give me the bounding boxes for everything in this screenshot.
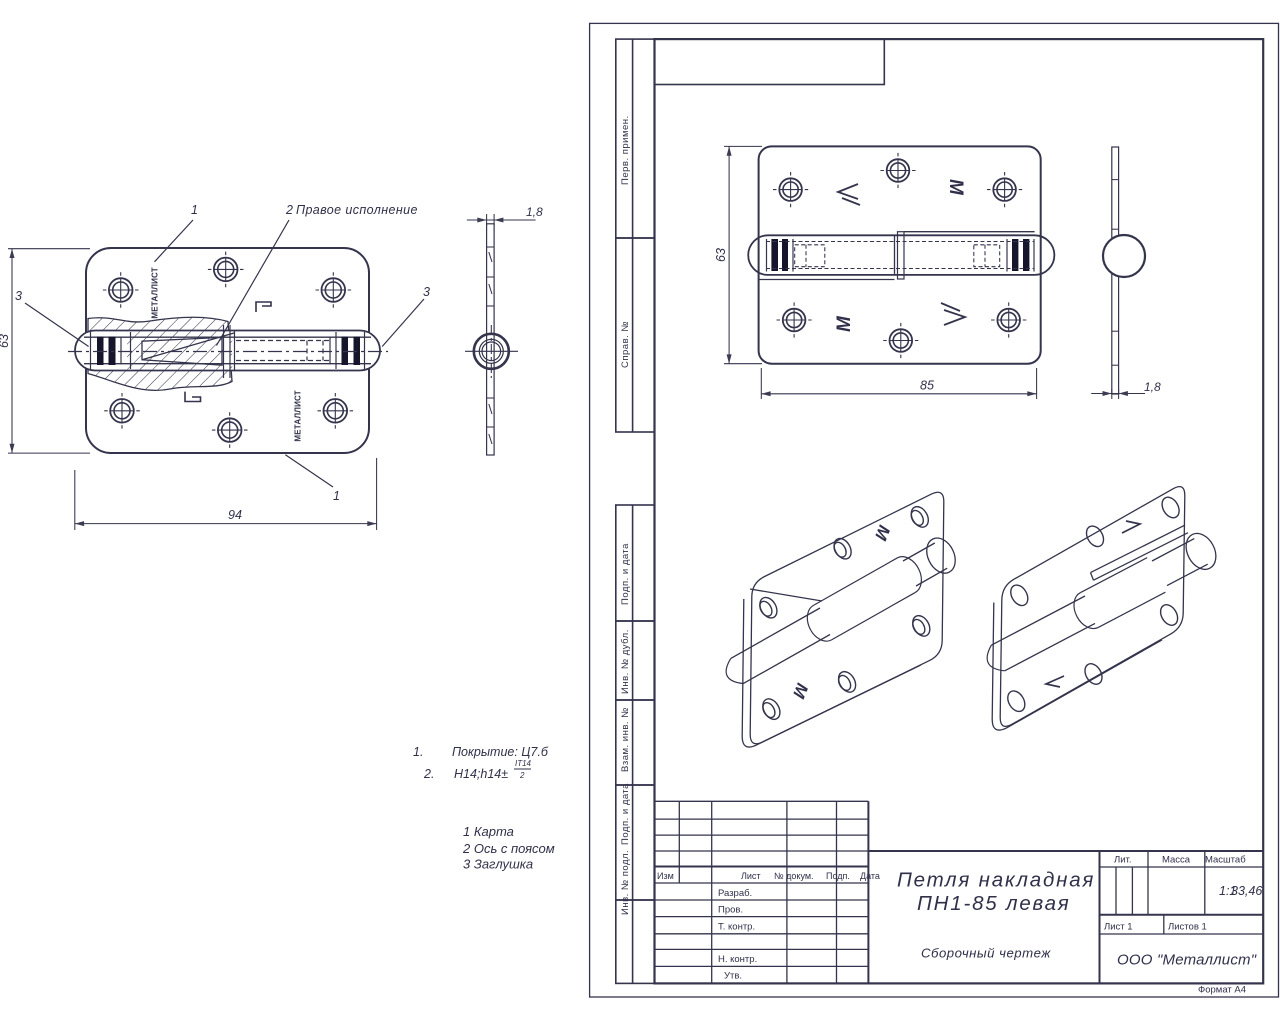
svg-text:Сборочный чертеж: Сборочный чертеж: [921, 946, 1051, 961]
svg-text:Подп. и дата: Подп. и дата: [620, 543, 631, 605]
svg-text:1,8: 1,8: [526, 205, 543, 219]
svg-text:Утв.: Утв.: [724, 971, 742, 982]
svg-text:Пров.: Пров.: [718, 905, 743, 916]
svg-text:МЕТАЛЛИСТ: МЕТАЛЛИСТ: [151, 267, 160, 319]
svg-text:94: 94: [228, 508, 242, 522]
svg-text:Лист 1: Лист 1: [1104, 922, 1133, 933]
svg-text:Масштаб: Масштаб: [1205, 855, 1246, 866]
svg-text:Петля накладная: Петля накладная: [897, 869, 1095, 892]
svg-text:63: 63: [0, 334, 11, 348]
svg-text:М: М: [871, 523, 894, 544]
svg-text:Листов 1: Листов 1: [1168, 922, 1207, 933]
svg-text:2: 2: [519, 771, 525, 780]
svg-text:Справ. №: Справ. №: [620, 321, 631, 368]
svg-text:Инв. № подл.: Инв. № подл.: [620, 850, 631, 915]
svg-text:Н. контр.: Н. контр.: [718, 954, 757, 965]
svg-text:Перв. примен.: Перв. примен.: [620, 115, 631, 185]
svg-text:МЕТАЛЛИСТ: МЕТАЛЛИСТ: [294, 390, 303, 442]
svg-text:1 Карта: 1 Карта: [463, 824, 514, 839]
svg-text:63: 63: [714, 248, 728, 262]
svg-text:2 Ось с поясом: 2 Ось с поясом: [462, 841, 555, 856]
svg-text:2.: 2.: [423, 767, 434, 781]
svg-text:М: М: [789, 681, 812, 702]
svg-text:Инв. № дубл.: Инв. № дубл.: [620, 629, 631, 694]
svg-text:Покрытие: Ц7.б: Покрытие: Ц7.б: [452, 745, 549, 759]
svg-text:1: 1: [191, 203, 198, 217]
svg-text:85: 85: [920, 379, 934, 393]
svg-text:Формат А4: Формат А4: [1198, 985, 1246, 996]
svg-text:Т. контр.: Т. контр.: [718, 922, 755, 933]
svg-text:№ докум.: № докум.: [774, 871, 814, 881]
svg-text:3: 3: [15, 289, 22, 303]
svg-text:Лист: Лист: [741, 871, 761, 881]
svg-text:3: 3: [423, 285, 430, 299]
svg-text:ООО "Металлист": ООО "Металлист": [1117, 952, 1257, 969]
svg-text:Масса: Масса: [1162, 855, 1191, 866]
svg-text:М: М: [834, 315, 855, 332]
svg-text:ПН1-85 левая: ПН1-85 левая: [917, 892, 1071, 915]
svg-text:Лит.: Лит.: [1114, 855, 1131, 866]
svg-text:1,8: 1,8: [1144, 380, 1161, 394]
svg-text:3 Заглушка: 3 Заглушка: [463, 857, 533, 872]
svg-text:Взам. инв. №: Взам. инв. №: [620, 707, 631, 772]
svg-text:Разраб.: Разраб.: [718, 888, 752, 899]
svg-text:1: 1: [333, 489, 340, 503]
svg-text:Подп. и дата: Подп. и дата: [620, 783, 631, 845]
svg-text:Подп.: Подп.: [826, 871, 850, 881]
svg-text:М: М: [945, 179, 966, 196]
svg-text:33,46: 33,46: [1231, 884, 1262, 898]
svg-text:1.: 1.: [413, 745, 423, 759]
svg-text:Изм: Изм: [657, 871, 674, 881]
svg-text:Правое исполнение: Правое исполнение: [296, 203, 418, 217]
svg-text:2: 2: [285, 203, 293, 217]
svg-text:Н14;h14±: Н14;h14±: [454, 767, 508, 781]
svg-text:Дата: Дата: [860, 871, 880, 881]
svg-text:IT14: IT14: [515, 759, 532, 768]
